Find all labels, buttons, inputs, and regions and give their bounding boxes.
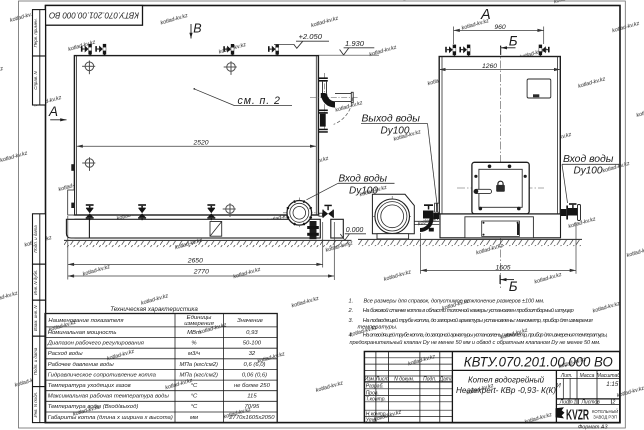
svg-text:Масса: Масса — [580, 373, 595, 379]
svg-text:Диапазон рабочего регулировани: Диапазон рабочего регулирования — [47, 341, 145, 347]
svg-text:4.: 4. — [349, 332, 354, 338]
svg-text:Габариты котла (длина х ширина: Габариты котла (длина х ширина х высота) — [48, 415, 173, 421]
svg-text:°С: °С — [191, 383, 198, 389]
svg-text:КОТЕЛЬНЫЙ: КОТЕЛЬНЫЙ — [592, 409, 618, 414]
svg-text:Рабочее давление воды: Рабочее давление воды — [48, 362, 115, 368]
svg-text:Взам. инв. N: Взам. инв. N — [33, 305, 38, 331]
svg-text:N докум.: N докум. — [394, 377, 414, 383]
svg-text:115: 115 — [247, 394, 257, 400]
svg-text:И: И — [556, 382, 561, 389]
svg-text:32: 32 — [249, 351, 256, 357]
svg-text:3.: 3. — [349, 318, 354, 324]
svg-text:70/95: 70/95 — [245, 404, 260, 410]
svg-text:Расход воды: Расход воды — [48, 351, 84, 357]
svg-text:0.000: 0.000 — [346, 227, 364, 234]
svg-text:В: В — [193, 22, 201, 36]
svg-text:Значение: Значение — [237, 318, 264, 324]
svg-text:0,06 (0,6): 0,06 (0,6) — [242, 372, 267, 378]
svg-text:ЗАВОД РЭП: ЗАВОД РЭП — [593, 414, 617, 419]
svg-text:Формат А3: Формат А3 — [578, 424, 608, 430]
svg-text:1605: 1605 — [495, 264, 510, 271]
svg-text:Подп. и дата: Подп. и дата — [33, 225, 38, 253]
svg-text:Наименование показателя: Наименование показателя — [48, 318, 124, 324]
svg-text:м3/ч: м3/ч — [188, 351, 200, 357]
svg-text:Все размеры для справок, допус: Все размеры для справок, допустимое откл… — [364, 298, 545, 304]
svg-text:Дата: Дата — [438, 377, 452, 383]
svg-text:2770х1605х2050: 2770х1605х2050 — [228, 415, 275, 421]
svg-text:На подводящей трубе котла, до: На подводящей трубе котла, до запорной а… — [363, 317, 593, 324]
svg-text:измерения: измерения — [184, 321, 214, 327]
svg-text:На отводящей трубе котла, до з: На отводящей трубе котла, до запорной ар… — [363, 331, 608, 338]
svg-text:МВт: МВт — [187, 330, 201, 336]
svg-text:Температура воды (Вход/выход): Температура воды (Вход/выход) — [48, 404, 139, 410]
svg-text:Гидравлическое сопротивление к: Гидравлическое сопротивление котла — [48, 372, 157, 378]
svg-text:Разраб.: Разраб. — [366, 384, 384, 390]
svg-text:Лит.: Лит. — [560, 373, 573, 379]
svg-text:0,6 (6,0): 0,6 (6,0) — [244, 362, 266, 368]
svg-text:мм: мм — [190, 415, 198, 421]
svg-text:КВТУ.070.201.00.000 ВО: КВТУ.070.201.00.000 ВО — [464, 354, 613, 369]
svg-text:Dy100: Dy100 — [574, 166, 603, 177]
svg-text:1.: 1. — [349, 298, 354, 304]
svg-text:Инв. N дубл.: Инв. N дубл. — [33, 269, 38, 294]
svg-text:Номинальная мощность: Номинальная мощность — [48, 330, 117, 336]
svg-text:Лист: Лист — [375, 377, 389, 383]
svg-text:1260: 1260 — [482, 63, 497, 70]
svg-text:А: А — [480, 7, 491, 23]
svg-text:МПа (кгс/см2): МПа (кгс/см2) — [180, 362, 219, 368]
svg-text:+2.050: +2.050 — [299, 32, 323, 41]
svg-text:КВТУ.070.201.00.000 ВО: КВТУ.070.201.00.000 ВО — [49, 10, 139, 20]
svg-text:Подп.: Подп. — [423, 377, 436, 383]
svg-text:Б: Б — [509, 279, 518, 294]
svg-text:Выход воды: Выход воды — [362, 113, 421, 124]
svg-text:Утв.: Утв. — [366, 418, 377, 424]
svg-text:Вход воды: Вход воды — [339, 173, 388, 184]
svg-text:А: А — [48, 104, 58, 119]
svg-text:Т.контр.: Т.контр. — [366, 397, 386, 403]
svg-text:Подп. и дата: Подп. и дата — [33, 347, 38, 375]
svg-text:Котел водогрейный: Котел водогрейный — [468, 376, 545, 385]
svg-text:Справ. N: Справ. N — [33, 70, 38, 89]
svg-text:Пров.: Пров. — [366, 390, 379, 396]
svg-text:температуры.: температуры. — [358, 325, 398, 331]
svg-text:Изм.: Изм. — [365, 377, 376, 383]
svg-text:°С: °С — [191, 394, 198, 400]
svg-text:Б: Б — [509, 34, 518, 49]
svg-text:Максимальная рабочая температу: Максимальная рабочая температура воды — [48, 394, 170, 400]
svg-text:2: 2 — [612, 399, 616, 405]
svg-text:Техническая характеристика: Техническая характеристика — [110, 306, 198, 313]
svg-text:2520: 2520 — [192, 139, 208, 146]
svg-text:1:15: 1:15 — [606, 381, 619, 388]
svg-text:Вход воды: Вход воды — [563, 154, 614, 165]
svg-text:960: 960 — [494, 24, 506, 31]
svg-text:%: % — [191, 341, 196, 347]
svg-text:1: 1 — [574, 399, 577, 405]
svg-text:°С: °С — [191, 404, 198, 410]
svg-text:Температура уходящих газов: Температура уходящих газов — [48, 383, 131, 389]
svg-text:Лист: Лист — [559, 399, 573, 405]
svg-text:2.: 2. — [348, 308, 354, 314]
svg-text:2770: 2770 — [193, 269, 209, 276]
svg-text:Инв. N подл.: Инв. N подл. — [33, 392, 38, 418]
svg-text:предохранительный клапан Dу н: предохранительный клапан Dу не менее 50 … — [350, 339, 601, 346]
svg-text:На боковой стенке котла в обла: На боковой стенке котла в области топочн… — [363, 307, 574, 314]
svg-text:МПа (кгс/см2): МПа (кгс/см2) — [180, 372, 219, 378]
svg-text:не более 250: не более 250 — [234, 383, 271, 389]
svg-text:50-100: 50-100 — [243, 341, 262, 347]
svg-text:Heatexpert- КВр -0,93- К(К): Heatexpert- КВр -0,93- К(К) — [456, 386, 556, 395]
svg-text:2650: 2650 — [187, 258, 203, 265]
svg-text:1.930: 1.930 — [345, 39, 365, 48]
svg-text:Н.контр.: Н.контр. — [366, 411, 387, 417]
svg-text:KVZR: KVZR — [566, 407, 589, 423]
svg-text:0,93: 0,93 — [246, 330, 258, 336]
svg-text:Масштаб: Масштаб — [597, 373, 621, 379]
svg-text:см. п. 2: см. п. 2 — [238, 95, 281, 107]
svg-text:Листов: Листов — [581, 399, 601, 405]
svg-text:Dy100: Dy100 — [381, 125, 410, 136]
svg-text:Перв. примен.: Перв. примен. — [33, 18, 38, 47]
